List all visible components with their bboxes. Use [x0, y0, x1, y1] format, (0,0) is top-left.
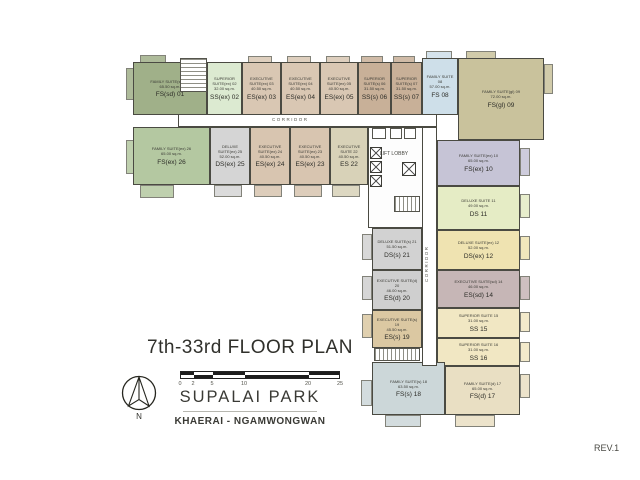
- unit-code: SS(s) 06: [362, 94, 387, 101]
- unit-name: EXECUTIVE SUITE(ex) 04: [284, 76, 317, 86]
- unit-area: 65.00 sq.m.: [468, 159, 489, 164]
- unit-09: FAMILY SUITE(gl) 0972.00 sq.m.FS(gl) 09: [458, 58, 544, 140]
- unit-03: EXECUTIVE SUITE(ex) 0340.50 sq.m.ES(ex) …: [242, 62, 281, 115]
- balcony-unit-25: [214, 185, 242, 197]
- balcony-unit-12: [520, 236, 530, 260]
- unit-25: DELUXE SUITE(ex) 2552.00 sq.m.DS(ex) 25: [210, 127, 250, 185]
- unit-code: FS(gl) 09: [488, 102, 515, 109]
- balcony-unit-23: [294, 185, 322, 197]
- service-room: [390, 128, 402, 139]
- service-room: [372, 128, 386, 139]
- unit-name: EXECUTIVE SUITE 22: [333, 144, 365, 154]
- balcony-unit-18: [361, 380, 372, 406]
- unit-code: ES(ex) 03: [247, 94, 276, 101]
- unit-area: 65.00 sq.m.: [161, 152, 182, 157]
- project-location: KHAERAI - NGAMWONGWAN: [150, 416, 350, 427]
- balcony-unit-22: [332, 185, 360, 197]
- unit-21: DELUXE SUITE(s) 2151.50 sq.m.DS(s) 21: [372, 228, 422, 270]
- unit-name: EXECUTIVE SUITE(ex) 05: [323, 76, 355, 86]
- unit-name: EXECUTIVE SUITE(ex) 03: [245, 76, 278, 86]
- stairs-icon: [180, 58, 207, 92]
- scale-tick: 2: [187, 381, 199, 387]
- unit-area: 31.00 sq.m.: [468, 348, 489, 353]
- unit-name: FAMILY SUITE(d) 17: [464, 381, 501, 386]
- balcony-unit-24: [254, 185, 282, 197]
- floor-plan-title: 7th-33rd FLOOR PLAN: [130, 337, 370, 359]
- unit-name: FAMILY SUITE 08: [425, 74, 455, 84]
- unit-code: ES(ex) 23: [296, 161, 325, 168]
- unit-area: 51.50 sq.m.: [387, 245, 408, 250]
- unit-02: SUPERIOR SUITE(ex) 0232.00 sq.m.SS(ex) 0…: [207, 62, 242, 115]
- unit-15: SUPERIOR SUITE 1531.00 sq.m.SS 15: [437, 308, 520, 338]
- unit-area: 40.50 sq.m.: [260, 155, 281, 160]
- unit-area: 52.00 sq.m.: [468, 246, 489, 251]
- unit-23: EXECUTIVE SUITE(ex) 2340.50 sq.m.ES(ex) …: [290, 127, 330, 185]
- unit-area: 31.50 sq.m.: [396, 87, 417, 92]
- project-name: SUPALAI PARK: [150, 388, 350, 407]
- unit-18: FAMILY SUITE(s) 1863.50 sq.m.FS(s) 18: [372, 362, 445, 415]
- balcony-unit-18: [385, 415, 421, 427]
- unit-code: FS 08: [431, 92, 448, 99]
- scale-tick: 25: [334, 381, 346, 387]
- unit-area: 31.50 sq.m.: [364, 87, 385, 92]
- unit-code: ES(d) 20: [384, 295, 410, 302]
- balcony-unit-20: [362, 276, 372, 300]
- unit-name: EXECUTIVE SUITE(ex) 23: [293, 144, 327, 154]
- unit-name: SUPERIOR SUITE(ex) 02: [210, 76, 239, 86]
- project-underline: [183, 411, 317, 412]
- lift-icon: [370, 175, 382, 187]
- unit-24: EXECUTIVE SUITE(ex) 2440.50 sq.m.ES(ex) …: [250, 127, 290, 185]
- balcony-unit-15: [520, 312, 530, 332]
- unit-area: 40.50 sq.m.: [339, 155, 360, 160]
- unit-code: DS(s) 21: [384, 252, 410, 259]
- unit-05: EXECUTIVE SUITE(ex) 0540.50 sq.m.ES(ex) …: [320, 62, 358, 115]
- unit-04: EXECUTIVE SUITE(ex) 0440.50 sq.m.ES(ex) …: [281, 62, 320, 115]
- unit-area: 65.00 sq.m.: [472, 387, 493, 392]
- unit-06: SUPERIOR SUITE(s) 0631.50 sq.m.SS(s) 06: [358, 62, 391, 115]
- unit-area: 72.00 sq.m.: [491, 95, 512, 100]
- unit-name: DELUXE SUITE(ex) 25: [213, 144, 247, 154]
- unit-08: FAMILY SUITE 0857.00 sq.m.FS 08: [422, 58, 458, 115]
- unit-10: FAMILY SUITE(ex) 1065.00 sq.m.FS(ex) 10: [437, 140, 520, 186]
- unit-code: SS 15: [470, 326, 488, 333]
- unit-16: SUPERIOR SUITE 1631.00 sq.m.SS 16: [437, 338, 520, 366]
- scale-tick: 10: [238, 381, 250, 387]
- scale-tick: 20: [302, 381, 314, 387]
- unit-12: DELUXE SUITE(ex) 1252.00 sq.m.DS(ex) 12: [437, 230, 520, 270]
- unit-area: 31.00 sq.m.: [468, 319, 489, 324]
- stairs-icon: [374, 348, 420, 361]
- unit-code: ES(s) 19: [384, 334, 409, 341]
- unit-code: DS(ex) 25: [215, 161, 244, 168]
- unit-code: ES 22: [340, 161, 358, 168]
- unit-code: FS(d) 17: [470, 393, 495, 400]
- unit-name: FAMILY SUITE(s) 18: [390, 379, 427, 384]
- unit-code: SS(s) 07: [394, 94, 419, 101]
- unit-17: FAMILY SUITE(d) 1765.00 sq.m.FS(d) 17: [445, 366, 520, 415]
- unit-22: EXECUTIVE SUITE 2240.50 sq.m.ES 22: [330, 127, 368, 185]
- lift-lobby-label: LIFT LOBBY: [378, 151, 410, 158]
- unit-area: 40.50 sq.m.: [290, 87, 311, 92]
- unit-name: EXECUTIVE SUITE(s) 19: [375, 317, 419, 327]
- north-label: N: [131, 412, 147, 421]
- unit-26: FAMILY SUITE(ex) 2665.00 sq.m.FS(ex) 26: [133, 127, 210, 185]
- north-arrow-icon: [119, 374, 159, 414]
- corridor-label-vertical: CORRIDOR: [424, 222, 429, 282]
- unit-code: SS 16: [470, 355, 488, 362]
- unit-name: EXECUTIVE SUITE(d) 20: [375, 278, 419, 288]
- scale-bar: [180, 371, 340, 379]
- service-room: [404, 128, 416, 139]
- balcony-unit-11: [520, 194, 530, 218]
- balcony-unit-17: [520, 374, 530, 398]
- unit-name: SUPERIOR SUITE(s) 07: [394, 76, 420, 86]
- unit-code: ES(ex) 04: [286, 94, 315, 101]
- balcony-unit-19: [362, 314, 372, 338]
- unit-name: EXECUTIVE SUITE(ex) 24: [253, 144, 287, 154]
- unit-area: 63.50 sq.m.: [398, 385, 419, 390]
- scale-tick: 5: [206, 381, 218, 387]
- unit-area: 52.00 sq.m.: [220, 155, 241, 160]
- unit-code: SS(ex) 02: [210, 94, 239, 101]
- unit-area: 45.50 sq.m.: [387, 328, 408, 333]
- balcony-unit-16: [520, 342, 530, 362]
- balcony-unit-26: [140, 185, 174, 198]
- unit-area: 40.50 sq.m.: [329, 87, 350, 92]
- unit-area: 46.00 sq.m.: [387, 289, 408, 294]
- balcony-unit-21: [362, 234, 372, 260]
- unit-07: SUPERIOR SUITE(s) 0731.50 sq.m.SS(s) 07: [391, 62, 422, 115]
- unit-code: ES(ex) 24: [256, 161, 285, 168]
- unit-code: DS(ex) 12: [464, 253, 493, 260]
- balcony-unit-10: [520, 148, 530, 176]
- unit-code: FS(ex) 26: [157, 159, 186, 166]
- unit-area: 40.50 sq.m.: [251, 87, 272, 92]
- unit-area: 32.00 sq.m.: [214, 87, 235, 92]
- stairs-icon: [394, 196, 420, 212]
- unit-code: ES(ex) 05: [325, 94, 354, 101]
- unit-20: EXECUTIVE SUITE(d) 2046.00 sq.m.ES(d) 20: [372, 270, 422, 310]
- lift-icon: [402, 162, 416, 176]
- unit-area: 57.00 sq.m.: [430, 85, 451, 90]
- lift-icon: [370, 161, 382, 173]
- unit-code: DS 11: [470, 211, 488, 218]
- scale-tick: 0: [174, 381, 186, 387]
- floor-plan: CORRIDOR CORRIDOR LIFT LOBBY 7th-33rd FL…: [0, 0, 640, 480]
- unit-area: 46.00 sq.m.: [468, 285, 489, 290]
- unit-area: 65.50 sq.m.: [160, 85, 181, 90]
- unit-code: FS(s) 18: [396, 391, 421, 398]
- balcony-unit-14: [520, 276, 530, 300]
- unit-code: ES(sd) 14: [464, 292, 493, 299]
- unit-19: EXECUTIVE SUITE(s) 1945.50 sq.m.ES(s) 19: [372, 310, 422, 348]
- unit-code: FS(ex) 10: [464, 166, 493, 173]
- unit-area: 40.50 sq.m.: [300, 155, 321, 160]
- balcony-unit-09: [544, 64, 553, 94]
- balcony-unit-17: [455, 415, 495, 427]
- unit-area: 49.00 sq.m.: [468, 204, 489, 209]
- unit-11: DELUXE SUITE 1149.00 sq.m.DS 11: [437, 186, 520, 230]
- unit-name: SUPERIOR SUITE(s) 06: [361, 76, 389, 86]
- revision-label: REV.1: [594, 443, 619, 453]
- corridor-label-horizontal: CORRIDOR: [272, 117, 309, 122]
- unit-code: FS(sd) 01: [156, 91, 185, 98]
- unit-14: EXECUTIVE SUITE(sd) 1446.00 sq.m.ES(sd) …: [437, 270, 520, 308]
